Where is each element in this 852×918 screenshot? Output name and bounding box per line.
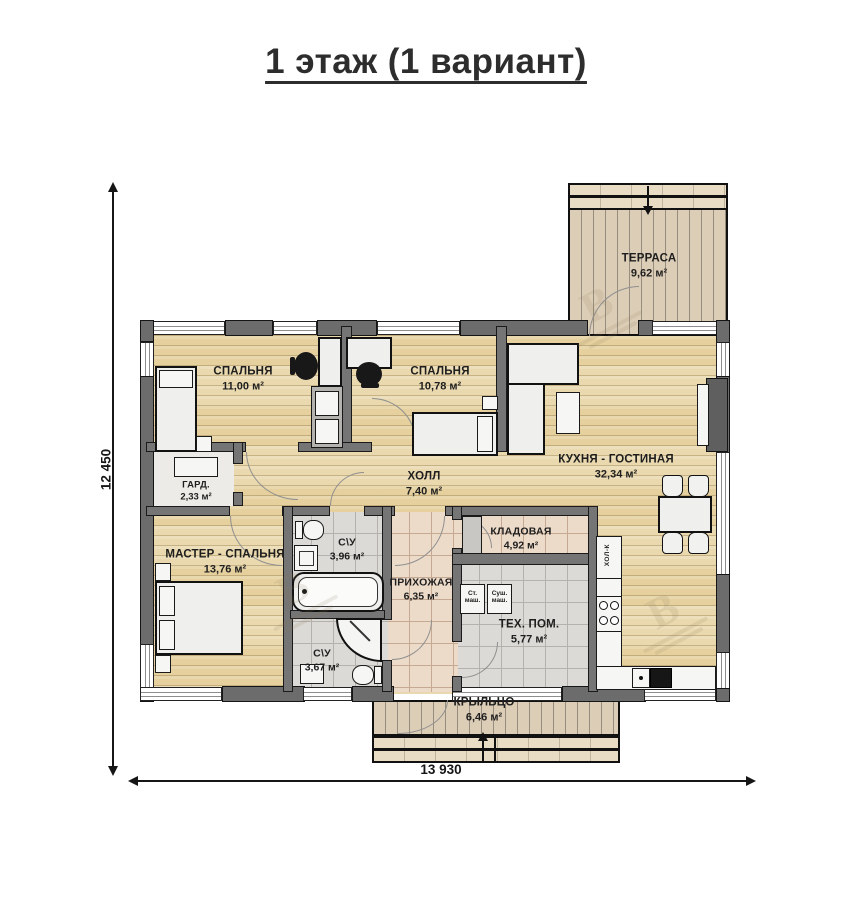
nightstand (482, 396, 498, 410)
dimension-height-label: 12 450 (99, 440, 114, 500)
pillow (159, 370, 193, 388)
tv-console (697, 384, 709, 446)
room-name: ГАРД. (180, 480, 211, 492)
dimension-arrow-icon (128, 776, 138, 786)
exterior-wall-segment (716, 320, 730, 344)
room-name: С\У (330, 536, 365, 550)
room-area: 32,34 м² (558, 467, 674, 481)
washing-machine-label: Ст. маш. (461, 590, 484, 605)
pillow (159, 620, 175, 650)
room-area: 6,46 м² (453, 710, 514, 724)
dimension-line-bottom (136, 780, 748, 782)
stove-burner (610, 601, 619, 610)
room-label-hall: ХОЛЛ 7,40 м² (406, 469, 442, 498)
window (377, 321, 460, 335)
dimension-width-label: 13 930 (386, 762, 496, 777)
pillow (477, 416, 493, 452)
nightstand (155, 655, 171, 673)
stove-burner (599, 616, 608, 625)
kitchen-sink (650, 668, 672, 688)
exterior-wall-segment (716, 688, 730, 702)
porch-arrow-up-icon (478, 732, 488, 741)
toilet (303, 520, 324, 540)
dimension-arrow-icon (746, 776, 756, 786)
window (303, 687, 352, 701)
pillow (159, 586, 175, 616)
exterior-wall-segment (225, 320, 273, 336)
room-area: 2,33 м² (180, 492, 211, 504)
room-label-storage: КЛАДОВАЯ 4,92 м² (490, 525, 551, 552)
room-label-entry: ПРИХОЖАЯ 6,35 м² (389, 576, 452, 603)
window (140, 644, 154, 690)
terrace-arrow-line (647, 186, 649, 208)
room-label-bedroom1: СПАЛЬНЯ 11,00 м² (213, 364, 272, 393)
dimension-arrow-icon (108, 182, 118, 192)
room-name: КУХНЯ - ГОСТИНАЯ (558, 452, 674, 467)
closet-shelf (315, 419, 339, 444)
room-label-kitchen-living: КУХНЯ - ГОСТИНАЯ 32,34 м² (558, 452, 674, 481)
interior-wall-segment (452, 553, 598, 565)
window (716, 652, 730, 690)
dining-table (658, 496, 712, 533)
interior-wall-segment (382, 660, 392, 692)
terrace-arrow-down-icon (643, 206, 653, 215)
wardrobe-shelf (174, 457, 218, 477)
room-name: КРЫЛЬЦО (453, 695, 514, 710)
sofa-corner-top (507, 343, 579, 385)
chair-back (361, 383, 379, 388)
room-area: 6,35 м² (389, 590, 452, 604)
sink-faucet-dot (639, 676, 643, 680)
page-title: 1 этаж (1 вариант) (0, 42, 852, 82)
room-name: КЛАДОВАЯ (490, 525, 551, 539)
porch-step-divider (494, 737, 496, 762)
chair-back (290, 357, 295, 375)
room-area: 13,76 м² (165, 562, 284, 576)
room-area: 5,77 м² (499, 632, 560, 646)
window (716, 452, 730, 576)
desk (318, 337, 342, 387)
room-area: 3,67 м² (305, 661, 340, 675)
interior-wall-segment (445, 506, 598, 516)
room-name: С\У (305, 647, 340, 661)
window (273, 321, 317, 335)
interior-wall-segment (452, 506, 462, 520)
fridge-label: ХОЛ-К (604, 544, 611, 566)
porch-arrow-line (482, 741, 484, 761)
exterior-wall-segment (716, 574, 730, 654)
room-name: ТЕРРАСА (622, 251, 677, 266)
window (140, 342, 154, 378)
interior-wall-segment (233, 442, 243, 464)
room-name: СПАЛЬНЯ (410, 364, 469, 379)
tv-wall-panel (706, 378, 728, 452)
room-area: 11,00 м² (213, 379, 272, 393)
interior-wall-segment (146, 506, 230, 516)
nightstand (196, 436, 212, 452)
room-name: ПРИХОЖАЯ (389, 576, 452, 590)
room-label-porch: КРЫЛЬЦО 6,46 м² (453, 695, 514, 724)
storage-shelf (462, 516, 482, 554)
interior-wall-segment (233, 492, 243, 506)
toilet (352, 665, 374, 685)
window (716, 342, 730, 378)
porch-step (372, 749, 620, 763)
room-label-wardrobe: ГАРД. 2,33 м² (180, 480, 211, 505)
toilet-tank (295, 521, 303, 539)
room-area: 7,40 м² (406, 484, 442, 498)
window (140, 687, 222, 701)
dining-chair (688, 475, 709, 497)
room-label-master-bedroom: МАСТЕР - СПАЛЬНЯ 13,76 м² (165, 547, 284, 576)
room-name: ТЕХ. ПОМ. (499, 617, 560, 632)
room-label-bathroom1: С\У 3,96 м² (330, 536, 365, 563)
dryer-machine-label: Суш. маш. (488, 590, 511, 605)
room-area: 3,96 м² (330, 550, 365, 564)
room-label-tech-room: ТЕХ. ПОМ. 5,77 м² (499, 617, 560, 646)
room-label-bedroom2: СПАЛЬНЯ 10,78 м² (410, 364, 469, 393)
room-name: МАСТЕР - СПАЛЬНЯ (165, 547, 284, 562)
room-name: СПАЛЬНЯ (213, 364, 272, 379)
exterior-wall-segment (140, 320, 154, 342)
dining-chair (662, 532, 683, 554)
stove-burner (599, 601, 608, 610)
coffee-table (556, 392, 580, 434)
room-label-bathroom2: С\У 3,67 м² (305, 647, 340, 674)
office-chair (294, 352, 318, 380)
room-name: ХОЛЛ (406, 469, 442, 484)
dining-chair (688, 532, 709, 554)
interior-wall-segment (452, 676, 462, 692)
porch-step (372, 736, 620, 750)
dimension-arrow-icon (108, 766, 118, 776)
closet-shelf (315, 391, 339, 416)
floor-plan-page: 1 этаж (1 вариант) (0, 0, 852, 918)
room-area: 4,92 м² (490, 539, 551, 553)
toilet-tank (374, 666, 382, 684)
room-area: 10,78 м² (410, 379, 469, 393)
